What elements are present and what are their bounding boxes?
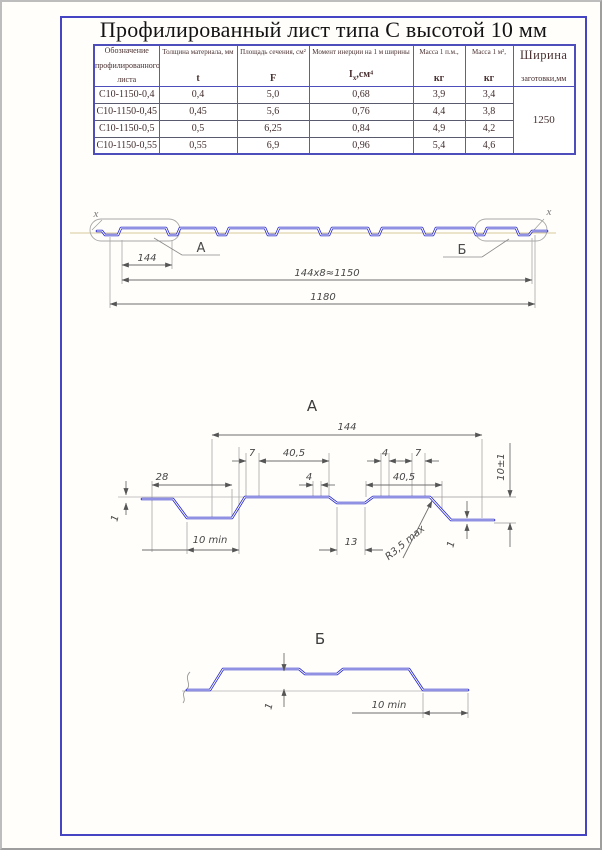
dim-label-pitches-total: 144x8≈1150 — [294, 268, 359, 279]
detail-b-drawing: Б 1 10 min — [152, 627, 482, 732]
table-row: С10-1150-0,5 0,5 6,25 0,84 4,9 4,2 — [94, 120, 575, 137]
profile-outline — [187, 669, 468, 690]
dim-label-thickness-right: 1 — [445, 540, 457, 549]
dim-label-10min: 10 min — [372, 700, 407, 711]
break-line — [183, 672, 190, 703]
callout-leaders — [154, 238, 509, 257]
axis-mark-right: x — [546, 206, 552, 218]
dim-label-10min: 10 min — [193, 535, 228, 546]
dim-label-40-5-bottom: 40,5 — [393, 472, 415, 483]
callout-label-b: Б — [458, 243, 467, 258]
dim-label-13: 13 — [345, 537, 358, 548]
col-header-mass-pm: Масса 1 п.м.,кг — [413, 45, 465, 86]
dim-label-40-5-top: 40,5 — [283, 448, 305, 459]
dim-label-overall: 1180 — [310, 292, 335, 303]
table-row: С10-1150-0,45 0,45 5,6 0,76 4,4 3,8 — [94, 103, 575, 120]
overview-drawing: x x А Б 144 144x8≈1150 1180 — [62, 197, 562, 312]
dim-label-thickness-left: 1 — [109, 514, 121, 523]
profile-inner-line — [187, 669, 468, 690]
drawing-sheet: Профилированный лист типа С высотой 10 м… — [0, 0, 602, 850]
dim-label-4-top: 4 — [382, 448, 388, 459]
col-header-inertia: Момент инерции на 1 м ширины Ix,см⁴ — [309, 45, 413, 86]
table-row: С10-1150-0,4 0,4 5,0 0,68 3,9 3,4 1250 — [94, 86, 575, 103]
profile-outline — [97, 228, 547, 235]
detail-a-title: А — [307, 397, 318, 415]
dim-label-height: 10±1 — [496, 453, 507, 480]
dim-label-4-bottom: 4 — [306, 472, 312, 483]
detail-b-title: Б — [315, 630, 325, 648]
dim-label-radius: R3,5 max — [384, 523, 428, 562]
profile-outline — [142, 497, 494, 520]
col-header-thickness: Толщина материала, ммt — [159, 45, 237, 86]
blank-width-cell: 1250 — [513, 86, 575, 154]
col-header-area: Площадь сечения, см²F — [237, 45, 309, 86]
page-title: Профилированный лист типа С высотой 10 м… — [60, 16, 587, 43]
spec-table: Обозначение профилированного листа Толщи… — [93, 44, 576, 155]
col-header-mass-m2: Масса 1 м²,кг — [465, 45, 513, 86]
table-row: С10-1150-0,55 0,55 6,9 0,96 5,4 4,6 — [94, 137, 575, 154]
col-header-designation: Обозначение профилированного листа — [94, 45, 159, 86]
dim-label-7-left: 7 — [249, 448, 256, 459]
dim-label-28: 28 — [156, 472, 169, 483]
callout-label-a: А — [197, 241, 206, 256]
dim-label-pitch: 144 — [137, 253, 156, 264]
table-header-row: Обозначение профилированного листа Толщи… — [94, 45, 575, 86]
col-header-blank-width: Шириназаготовки,мм — [513, 45, 575, 86]
extension-lines — [423, 693, 468, 718]
dim-label-thickness: 1 — [263, 702, 275, 711]
axis-mark-left: x — [93, 208, 99, 220]
dim-label-144: 144 — [337, 422, 356, 433]
dim-label-7-right: 7 — [415, 448, 422, 459]
detail-a-drawing: А — [102, 397, 522, 577]
